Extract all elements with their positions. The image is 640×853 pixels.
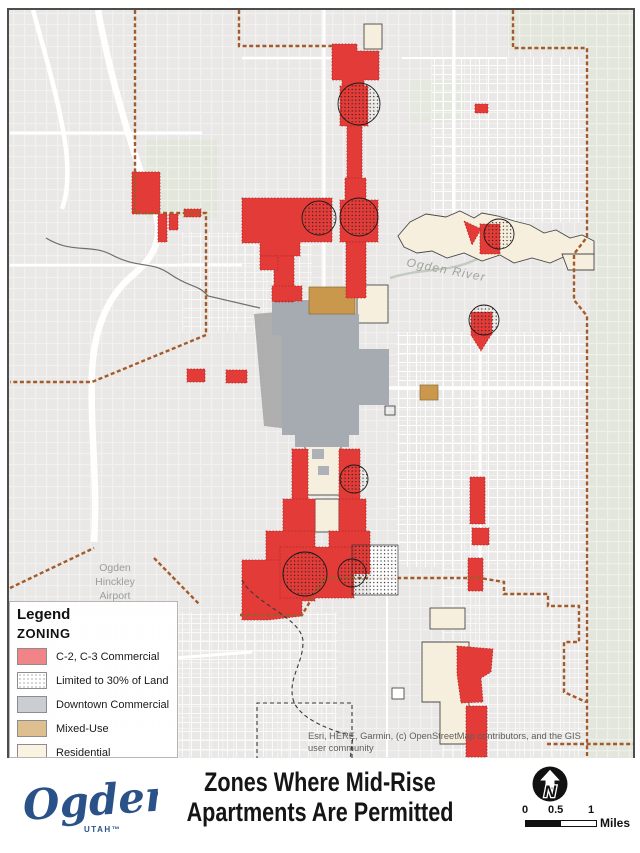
scale-tick-1: 1 xyxy=(588,804,594,816)
legend-swatch-commercial xyxy=(17,648,47,665)
svg-text:Hinckley: Hinckley xyxy=(95,576,135,588)
footer-bar: Ogden UTAH™ Zones Where Mid-Rise Apartme… xyxy=(0,758,640,853)
legend-item-downtown: Downtown Commercial xyxy=(17,696,177,713)
title-line-2: Apartments Are Permitted xyxy=(160,798,480,828)
north-arrow-icon: N xyxy=(528,763,572,807)
legend-swatch-mixed-use xyxy=(17,720,47,737)
ogden-logo: Ogden UTAH™ xyxy=(18,772,158,848)
scale-tick-0: 0 xyxy=(522,804,528,816)
legend-title: Legend xyxy=(17,606,177,623)
legend-item-limited: Limited to 30% of Land xyxy=(17,672,177,689)
legend-panel: Legend ZONING C-2, C-3 Commercial Limite… xyxy=(9,601,178,758)
scale-bar-fill xyxy=(526,821,561,826)
logo-subtext: UTAH™ xyxy=(84,825,121,834)
scale-bar: 0 0.5 1 Miles xyxy=(518,804,638,848)
legend-item-residential: Residential xyxy=(17,744,177,758)
scale-bar-track xyxy=(525,820,597,827)
page: Ogden River Ogden Hinckley Airport Esri,… xyxy=(0,0,640,853)
north-label: N xyxy=(544,782,557,801)
legend-label: Limited to 30% of Land xyxy=(56,675,169,687)
scale-tick-05: 0.5 xyxy=(548,804,563,816)
title-line-1: Zones Where Mid-Rise xyxy=(160,768,480,798)
legend-swatch-downtown xyxy=(17,696,47,713)
scale-unit-label: Miles xyxy=(600,816,630,830)
map-attribution: Esri, HERE, Garmin, (c) OpenStreetMap co… xyxy=(308,731,596,754)
legend-item-mixed-use: Mixed-Use xyxy=(17,720,177,737)
svg-text:Ogden: Ogden xyxy=(99,562,131,574)
page-title: Zones Where Mid-Rise Apartments Are Perm… xyxy=(160,768,480,827)
legend-subtitle: ZONING xyxy=(17,626,177,641)
legend-item-commercial: C-2, C-3 Commercial xyxy=(17,648,177,665)
legend-label: Downtown Commercial xyxy=(56,699,169,711)
legend-label: Residential xyxy=(56,747,110,759)
legend-label: C-2, C-3 Commercial xyxy=(56,651,159,663)
legend-swatch-limited xyxy=(17,672,47,689)
legend-label: Mixed-Use xyxy=(56,723,109,735)
legend-swatch-residential xyxy=(17,744,47,758)
map-canvas: Ogden River Ogden Hinckley Airport Esri,… xyxy=(7,8,635,760)
airport-label: Ogden Hinckley Airport xyxy=(95,562,135,602)
logo-text: Ogden xyxy=(21,772,158,830)
